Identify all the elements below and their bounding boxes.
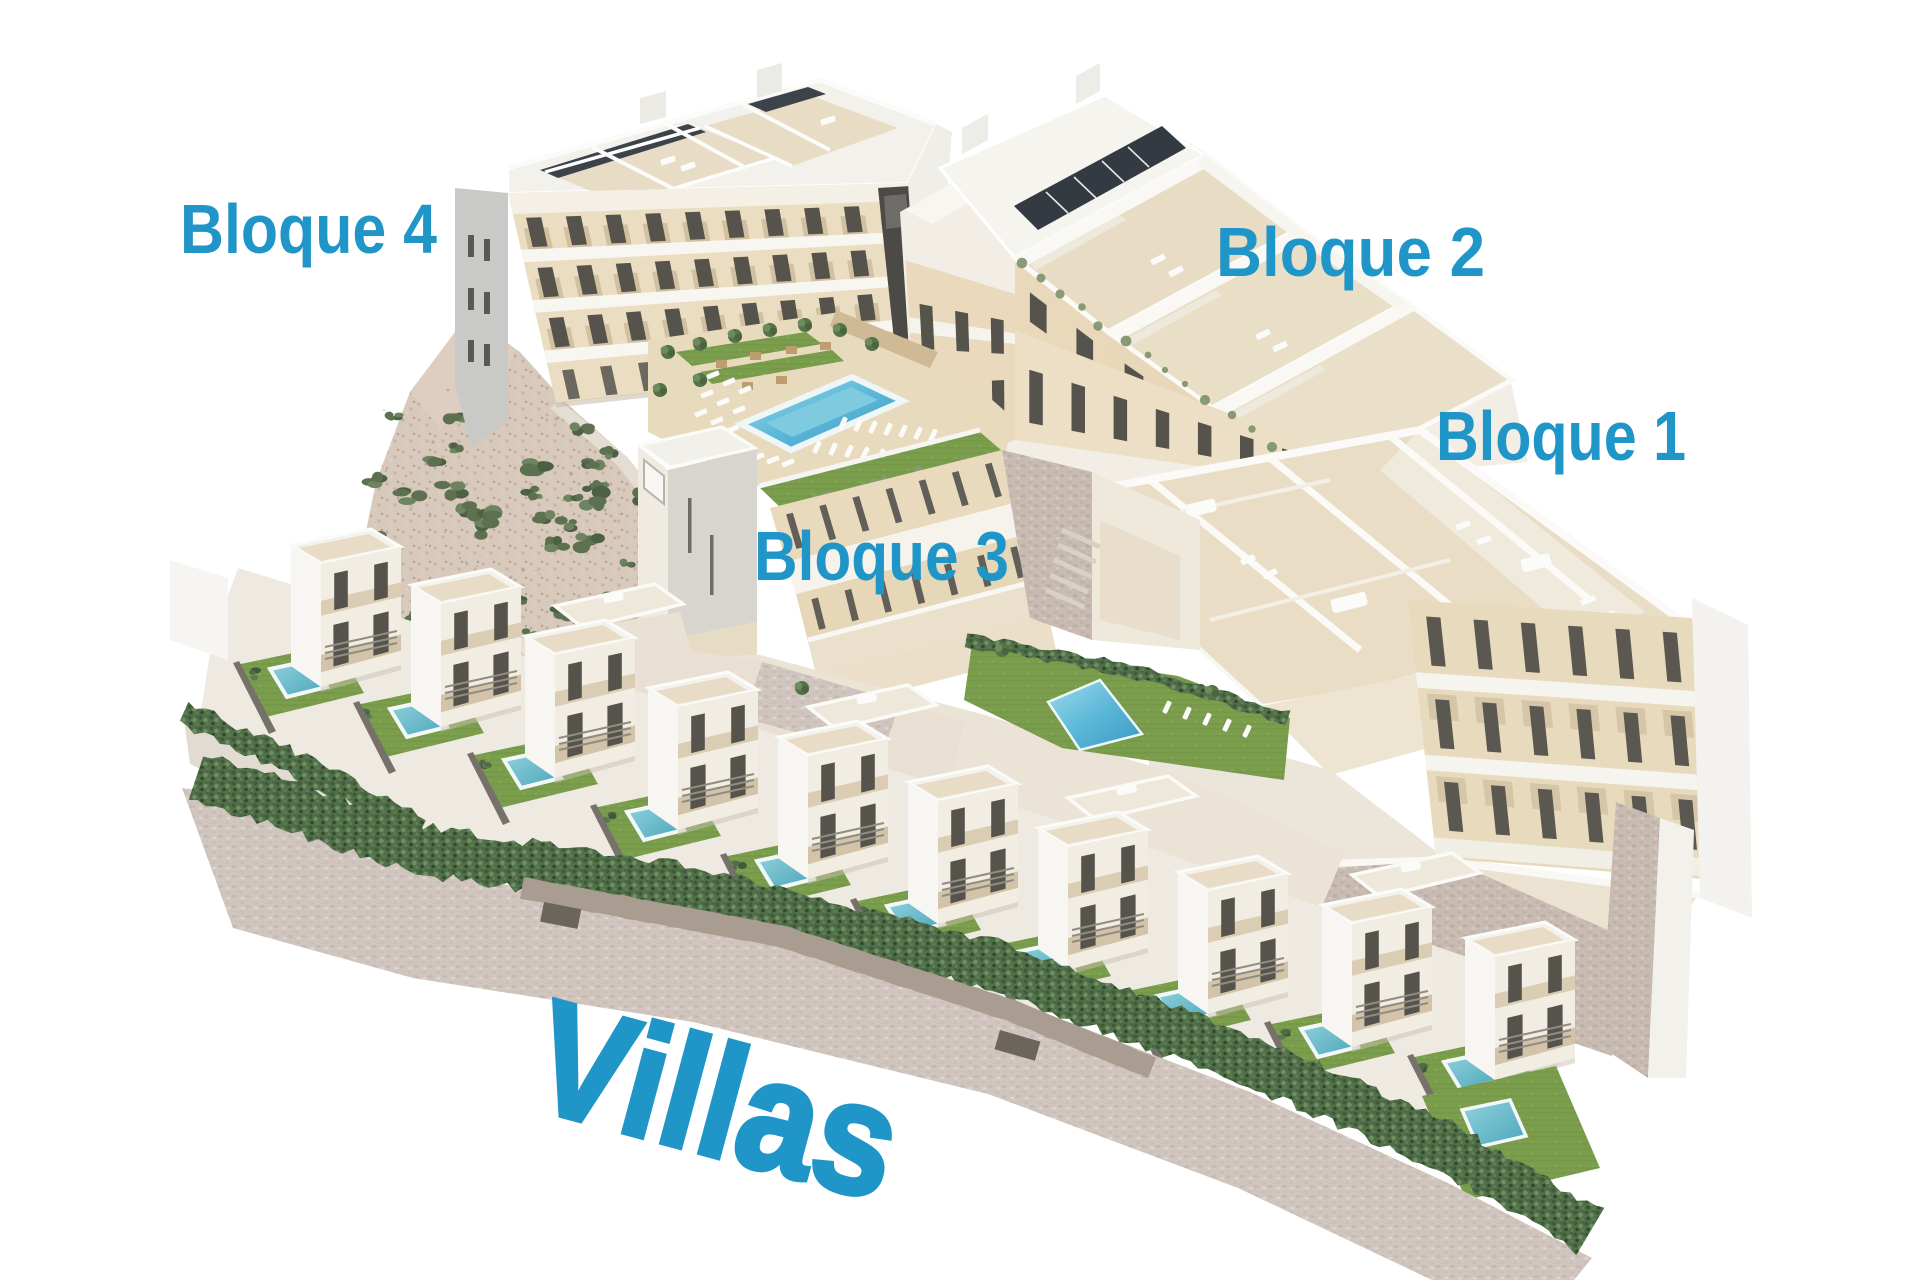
svg-text:Bloque 3: Bloque 3	[754, 517, 1009, 595]
svg-text:Bloque 2: Bloque 2	[1216, 213, 1485, 291]
svg-text:Bloque 1: Bloque 1	[1436, 397, 1686, 475]
svg-text:Bloque 4: Bloque 4	[180, 190, 437, 268]
